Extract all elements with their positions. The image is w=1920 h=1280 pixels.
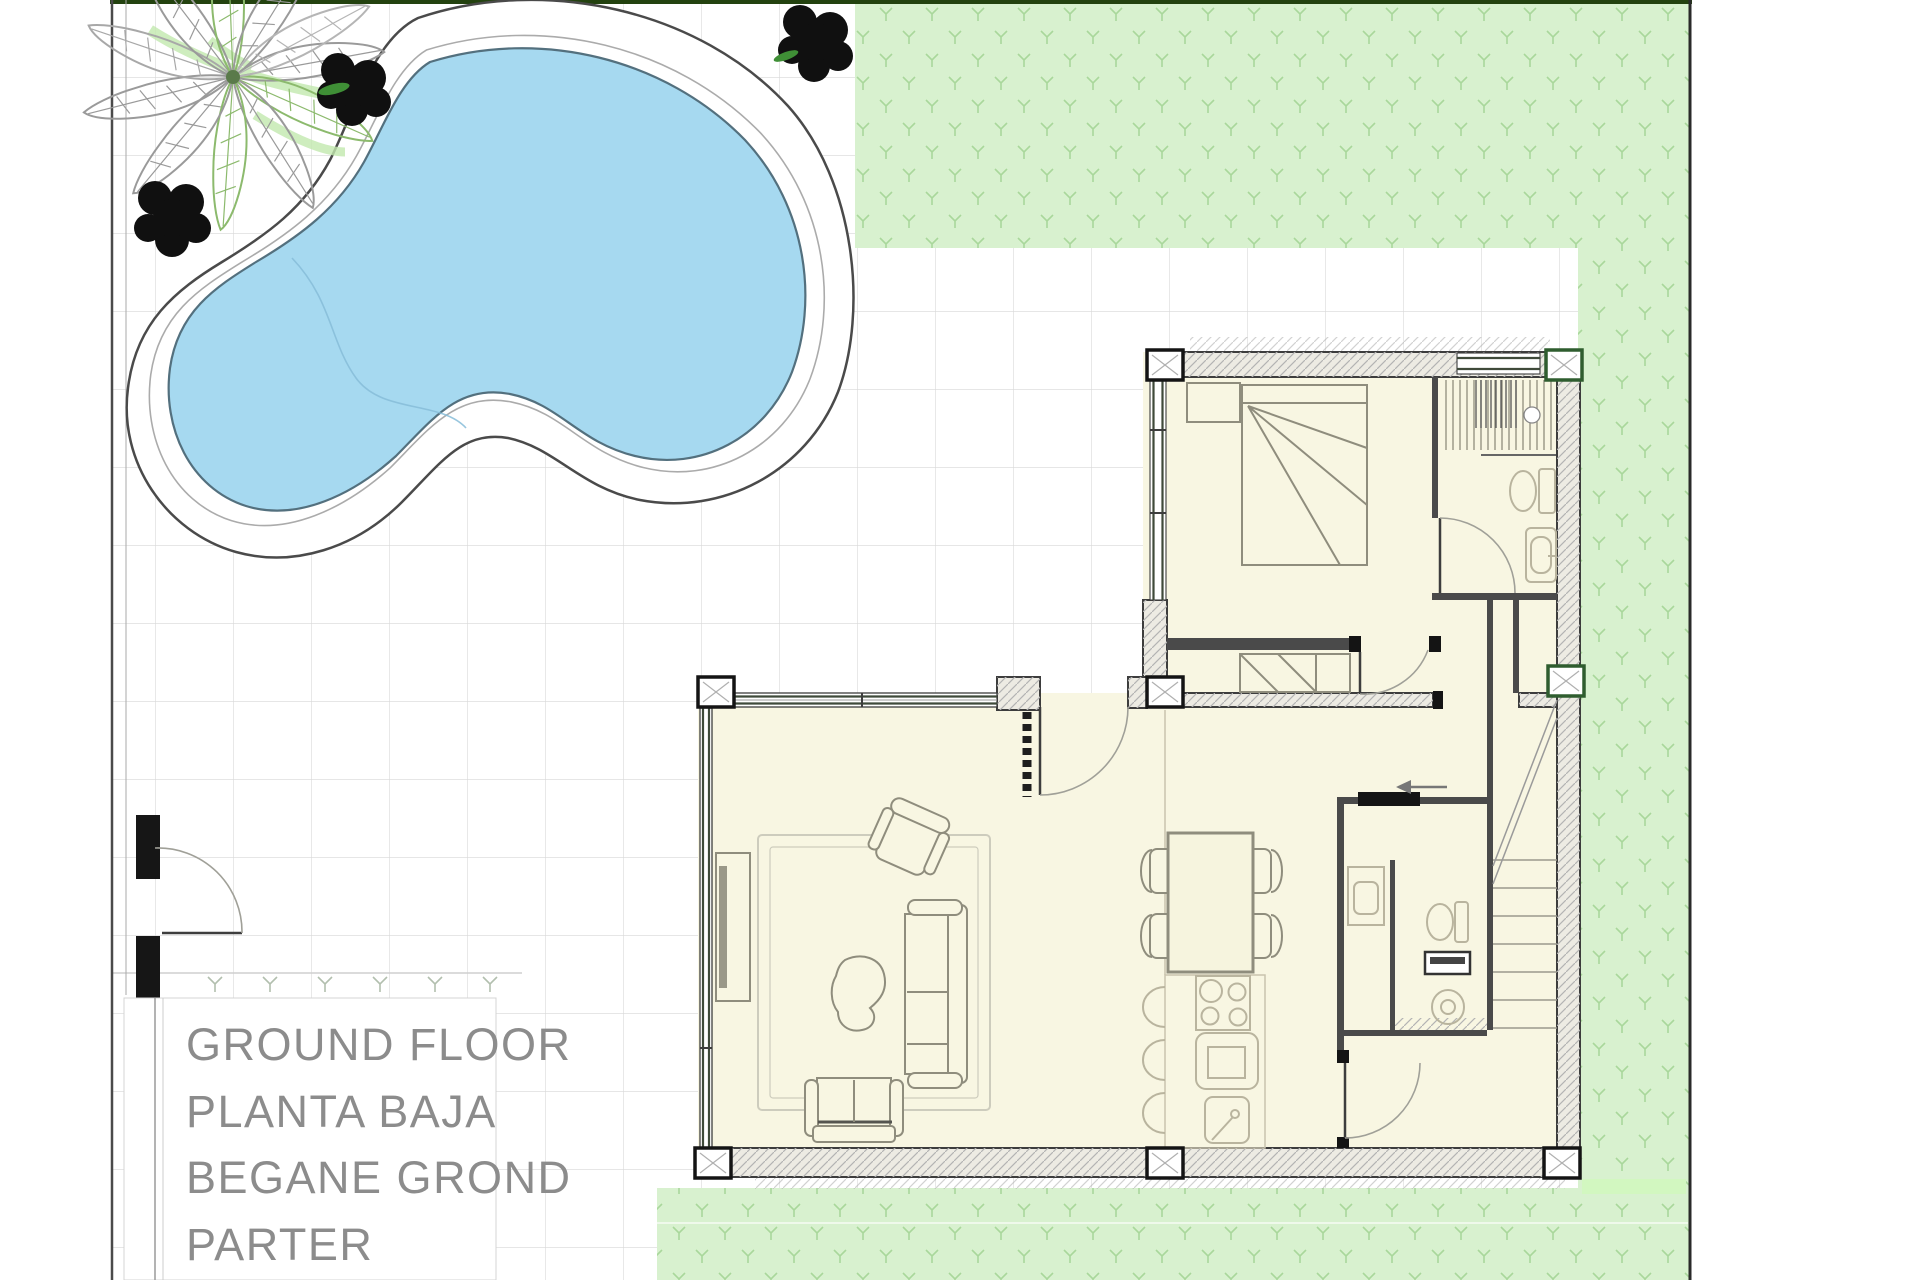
window-south-living [733,693,997,707]
utility-shelf [1425,952,1470,974]
floor-label-pl: PARTER [186,1219,373,1270]
palm-trunk [226,70,240,84]
dining-table [1168,833,1253,972]
floor-label-es: PLANTA BAJA [186,1086,497,1137]
floor-plan-canvas: GROUND FLOOR PLANTA BAJA BEGANE GROND PA… [0,0,1920,1280]
loveseat [805,1078,903,1142]
shower-head [1524,407,1540,423]
floor-plan: GROUND FLOOR PLANTA BAJA BEGANE GROND PA… [0,0,1920,1280]
tv [719,866,727,988]
floor-label-en: GROUND FLOOR [186,1019,572,1070]
lawn-bright-band [1582,1179,1686,1194]
window-west-bedroom [1150,377,1166,600]
gate-post [136,936,160,998]
sofa [905,900,967,1088]
window-north-bathroom [1457,353,1540,374]
floor-label-nl: BEGANE GROND [186,1152,572,1203]
gate-post [136,815,160,879]
window-west-living [700,708,712,1148]
bed [1242,385,1367,565]
